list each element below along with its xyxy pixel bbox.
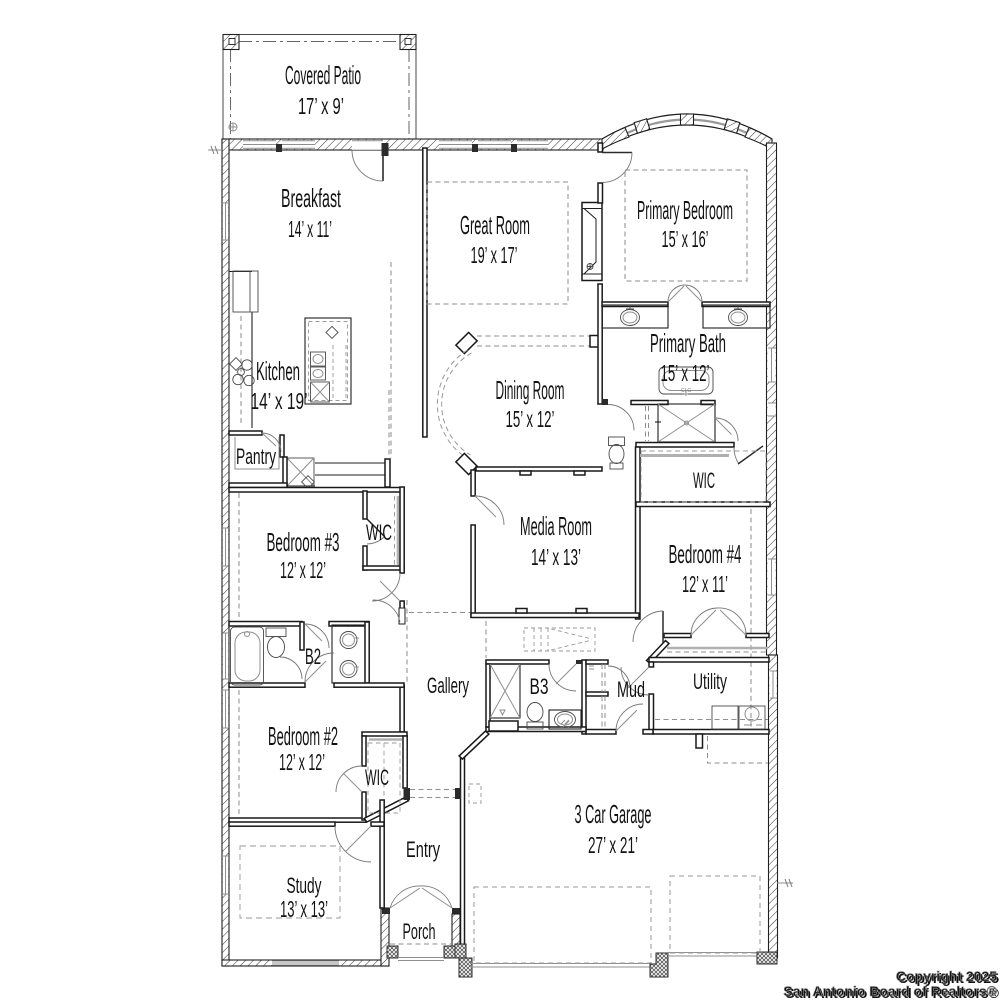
svg-text:15’ x 12’: 15’ x 12’ [661,360,710,386]
svg-text:Kitchen: Kitchen [256,356,300,386]
svg-text:15’ x 12’: 15’ x 12’ [506,406,555,432]
svg-text:WIC: WIC [693,468,715,493]
svg-text:Entry: Entry [406,837,440,862]
svg-text:Copyright 2025: Copyright 2025 [896,968,997,984]
svg-text:19’ x 17’: 19’ x 17’ [471,242,518,268]
svg-text:Covered Patio: Covered Patio [285,60,361,90]
svg-text:14’ x 13’: 14’ x 13’ [531,544,581,570]
svg-text:12’ x 12’: 12’ x 12’ [279,749,325,775]
svg-text:Great Room: Great Room [460,210,530,240]
svg-text:14’ x 19’: 14’ x 19’ [251,388,308,414]
svg-text:12’ x 12’: 12’ x 12’ [280,557,326,583]
svg-text:Utility: Utility [693,669,727,694]
svg-text:Primary Bath: Primary Bath [650,328,726,358]
svg-text:Porch: Porch [403,919,436,944]
svg-text:Study: Study [287,873,322,898]
svg-text:Gallery: Gallery [427,673,469,698]
svg-text:WIC: WIC [366,520,392,545]
svg-text:San Antonio Board of Realtors®: San Antonio Board of Realtors® [783,983,997,999]
svg-text:Pantry: Pantry [236,444,276,469]
svg-text:14’ x 11’: 14’ x 11’ [288,216,332,242]
svg-text:Primary Bedroom: Primary Bedroom [637,195,733,225]
svg-text:Media Room: Media Room [520,511,592,541]
svg-text:13’ x 13’: 13’ x 13’ [280,896,328,922]
svg-text:15’ x 16’: 15’ x 16’ [662,226,709,252]
svg-text:Mud: Mud [617,677,645,702]
svg-text:3 Car Garage: 3 Car Garage [575,799,652,829]
svg-text:12’ x 11’: 12’ x 11’ [682,571,728,597]
svg-text:27’ x 21’: 27’ x 21’ [588,832,638,858]
svg-text:Bedroom #3: Bedroom #3 [267,527,340,557]
svg-text:Bedroom #4: Bedroom #4 [669,539,742,569]
svg-text:CLG: CLG [681,388,691,394]
svg-text:WIC: WIC [365,765,389,790]
svg-text:Breakfast: Breakfast [281,183,341,213]
svg-text:B2: B2 [305,644,321,669]
svg-text:Dining Room: Dining Room [496,375,565,405]
svg-text:17’ x 9’: 17’ x 9’ [298,93,344,119]
svg-text:Bedroom #2: Bedroom #2 [268,721,338,751]
svg-text:B3: B3 [530,674,549,699]
